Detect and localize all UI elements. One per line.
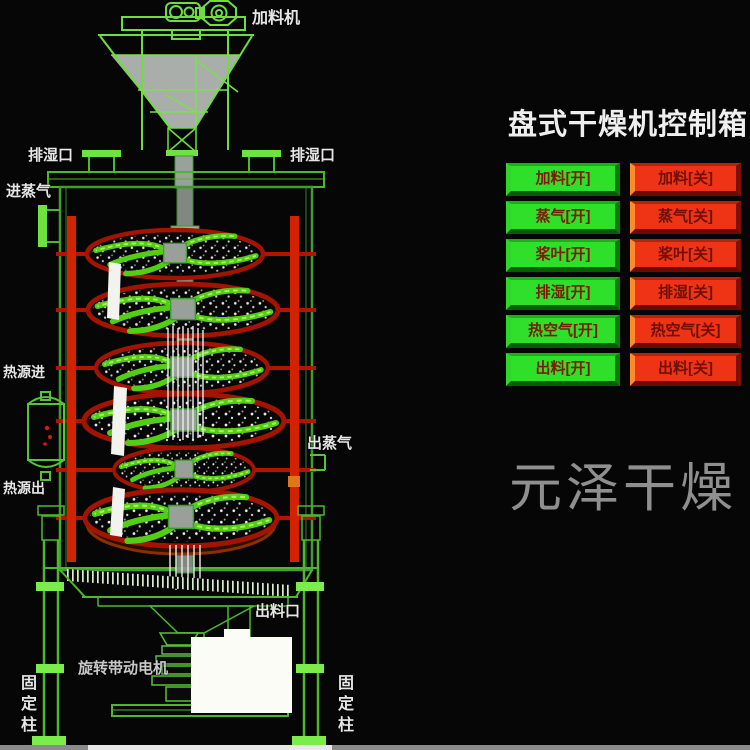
label-vent-right: 排湿口	[290, 144, 335, 165]
label-column-left: 固定柱	[14, 674, 38, 737]
dryer-tray	[114, 448, 254, 492]
label-heat-in: 热源进	[3, 362, 45, 382]
button-paddle-off[interactable]: 桨叶[关]	[630, 239, 741, 272]
button-hot-air-off[interactable]: 热空气[关]	[630, 315, 741, 348]
button-discharge-off[interactable]: 出料[关]	[630, 353, 741, 386]
button-feed-on[interactable]: 加料[开]	[506, 163, 620, 196]
button-hot-air-on[interactable]: 热空气[开]	[506, 315, 620, 348]
label-vent-left: 排湿口	[28, 144, 73, 165]
button-steam-off[interactable]: 蒸气[关]	[630, 201, 741, 234]
button-dehumidify-off[interactable]: 排湿[关]	[630, 277, 741, 310]
vent-port-right	[242, 150, 281, 173]
button-steam-on[interactable]: 蒸气[开]	[506, 201, 620, 234]
dryer-tray	[96, 343, 268, 393]
label-steam-out: 出蒸气	[307, 432, 352, 453]
label-column-right: 固定柱	[331, 674, 355, 737]
label-heat-out: 热源出	[3, 478, 45, 498]
button-feed-off[interactable]: 加料[关]	[630, 163, 741, 196]
on-button-column: 加料[开] 蒸气[开] 桨叶[开] 排湿[开] 热空气[开] 出料[开]	[506, 163, 620, 386]
label-steam-in: 进蒸气	[6, 180, 51, 201]
button-paddle-on[interactable]: 桨叶[开]	[506, 239, 620, 272]
hopper-funnel	[98, 30, 254, 188]
off-button-column: 加料[关] 蒸气[关] 桨叶[关] 排湿[关] 热空气[关] 出料[关]	[630, 163, 741, 386]
watermark: 元泽干燥	[509, 446, 737, 522]
vent-port-left	[82, 150, 121, 173]
ground-line	[0, 745, 750, 750]
label-motor: 旋转带动电机	[78, 657, 168, 678]
button-discharge-on[interactable]: 出料[开]	[506, 353, 620, 386]
panel-title: 盘式干燥机控制箱	[508, 101, 748, 143]
motor-housing-box	[191, 629, 292, 713]
button-dehumidify-on[interactable]: 排湿[开]	[506, 277, 620, 310]
screenshot-root: 加料机 排湿口 排湿口 进蒸气 热源进 热源出 出蒸气 出料口 旋转带动电机 固…	[0, 0, 750, 750]
feeder-machine	[122, 1, 245, 39]
label-feeder: 加料机	[252, 4, 300, 28]
steam-inlet-pipe	[38, 205, 60, 247]
label-outlet: 出料口	[255, 600, 300, 621]
heat-exchanger	[28, 392, 64, 480]
